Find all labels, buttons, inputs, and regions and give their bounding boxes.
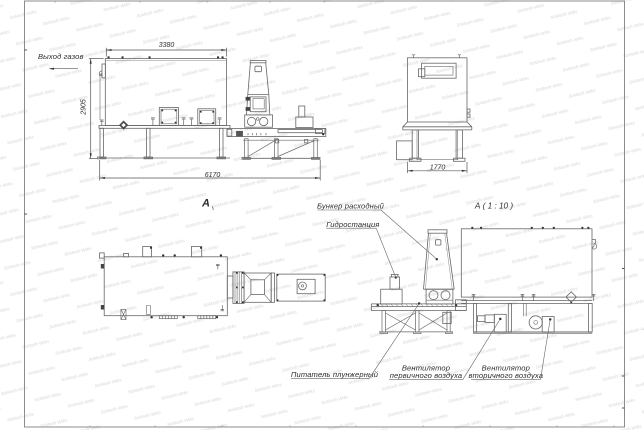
svg-text:6170: 6170 [205,172,221,179]
svg-text:3380: 3380 [159,42,175,49]
svg-text:первичного воздуха: первичного воздуха [390,371,463,380]
svg-text:Питатель плунжерный: Питатель плунжерный [291,370,379,379]
svg-text:А ( 1 : 10 ): А ( 1 : 10 ) [474,202,513,211]
svg-text:1770: 1770 [430,165,446,172]
svg-text:Бункер расходный: Бункер расходный [317,202,385,211]
svg-text:вторичного воздуха: вторичного воздуха [469,371,544,380]
svg-text:2905: 2905 [81,99,88,116]
svg-text:А: А [201,198,210,210]
svg-text:Выход газов: Выход газов [38,52,84,61]
svg-text:Гидростанция: Гидростанция [326,220,379,229]
